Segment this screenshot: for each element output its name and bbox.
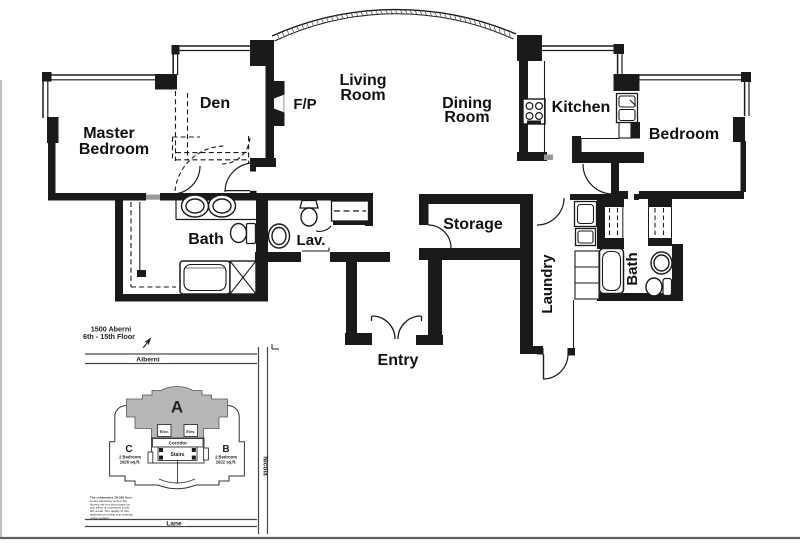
svg-text:Storage: Storage [443,216,503,233]
svg-text:Room: Room [340,87,385,104]
svg-text:Lav.: Lav. [297,232,326,249]
svg-text:Laundry: Laundry [539,254,556,314]
svg-text:Entry: Entry [378,352,419,369]
svg-text:Kitchen: Kitchen [552,99,611,116]
svg-text:6th - 15th Floor: 6th - 15th Floor [83,332,135,341]
svg-text:Bath: Bath [188,231,224,248]
svg-text:Nicola: Nicola [262,456,269,476]
svg-text:C: C [125,444,132,455]
svg-text:Bedroom: Bedroom [649,126,719,143]
svg-text:Elev.: Elev. [186,429,195,434]
svg-text:1626 sq.ft.: 1626 sq.ft. [120,460,140,465]
svg-text:Bedroom: Bedroom [79,141,149,158]
svg-text:of the omitted: of the omitted [90,516,109,520]
svg-text:A: A [171,398,183,417]
svg-text:F/P: F/P [293,96,316,113]
svg-text:Corridor: Corridor [169,440,188,445]
svg-text:Den: Den [200,95,230,112]
svg-text:B: B [222,444,229,455]
svg-text:Room: Room [444,109,489,126]
svg-text:Lane: Lane [166,521,182,528]
svg-text:Master: Master [83,125,135,142]
svg-text:Stairs: Stairs [171,452,185,458]
svg-text:1622 sq.ft.: 1622 sq.ft. [216,460,236,465]
svg-text:Bath: Bath [624,252,641,285]
svg-text:Alberni: Alberni [136,357,160,364]
svg-text:Elev.: Elev. [160,429,169,434]
